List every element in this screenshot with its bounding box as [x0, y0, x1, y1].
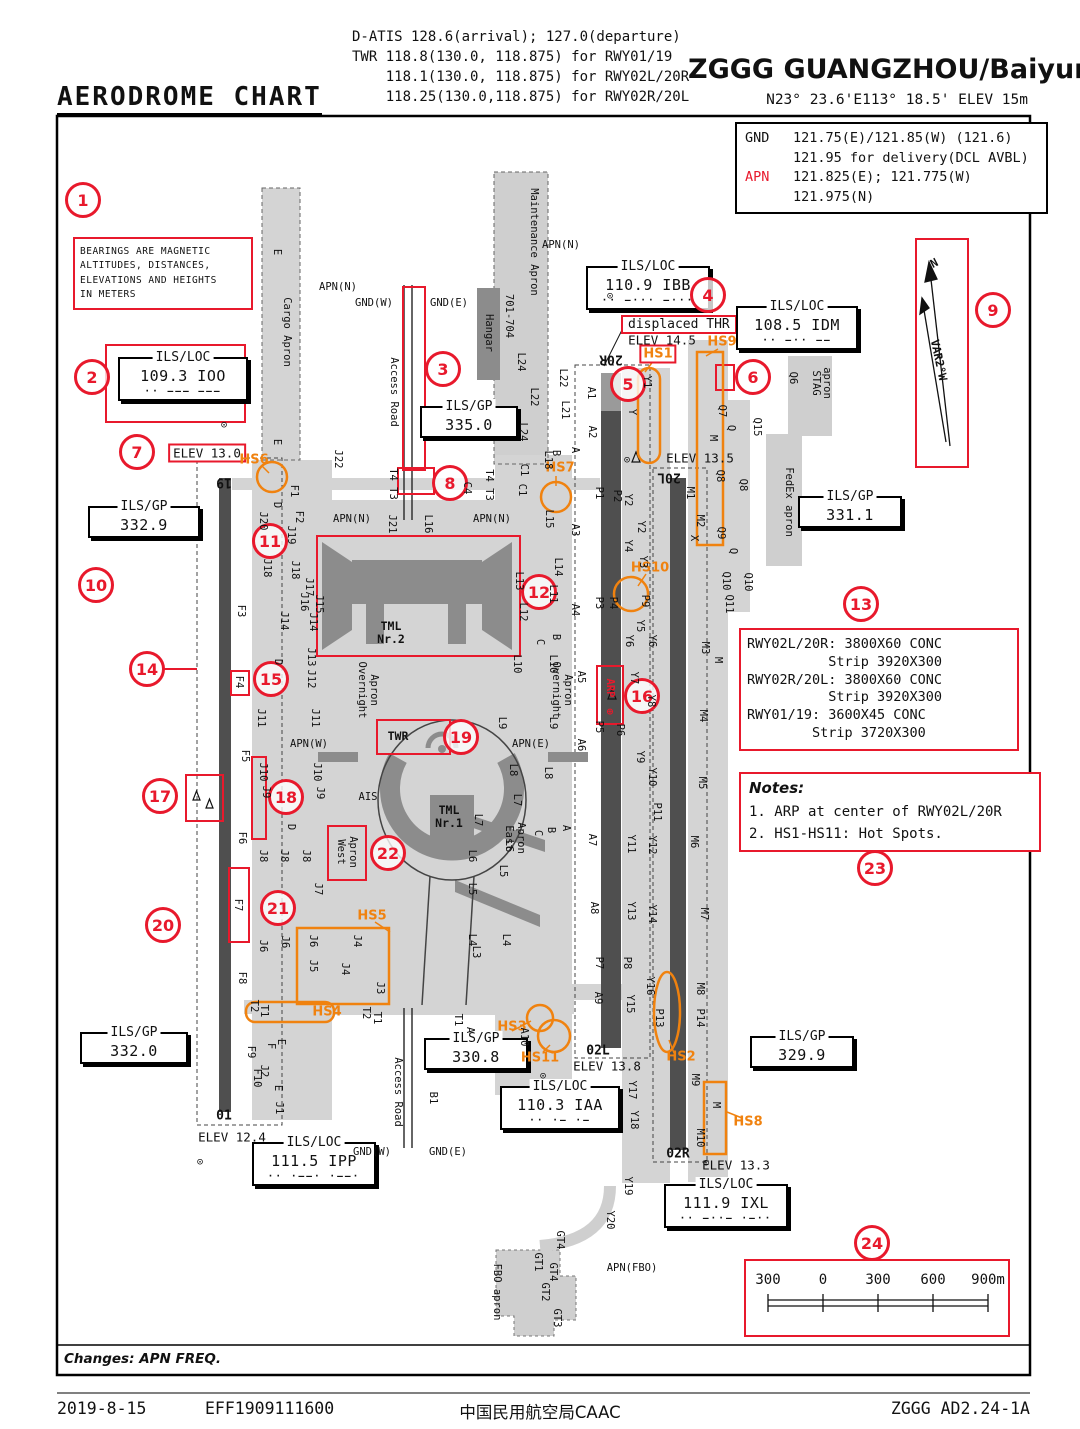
map-label: J10: [311, 763, 323, 782]
map-label: L3: [470, 946, 482, 959]
hotspot-label-hs9: HS9: [707, 335, 736, 350]
map-label: J3: [374, 982, 386, 995]
map-label: B: [550, 634, 562, 640]
navaid-type-label: ILS/LOC: [696, 1177, 757, 1192]
navaid-box-332-9: ILS/GP332.9: [88, 506, 200, 538]
map-label: B1: [427, 1092, 439, 1105]
map-label: T1: [258, 1005, 270, 1018]
callout-9: 9: [975, 292, 1011, 328]
navaid-box-110-3-IAA: ILS/LOC110.3 IAA·· ·– ·–: [500, 1086, 620, 1130]
map-label: AIS: [359, 791, 378, 803]
map-label: M9: [689, 1074, 701, 1087]
map-label: L5: [497, 865, 509, 878]
freq-service-label: APN: [745, 168, 793, 188]
map-label: ⊙: [607, 290, 613, 302]
freq-line: 118.25(130.0,118.875) for RWY02R/20L: [352, 88, 689, 108]
map-label: APN(N): [473, 513, 511, 525]
map-label: P14: [694, 1009, 706, 1028]
map-label: GND(E): [430, 297, 468, 309]
map-label: Q: [725, 425, 737, 431]
map-label: Y11: [625, 835, 637, 854]
map-label: Q10: [742, 573, 754, 592]
map-label: L7: [472, 814, 484, 827]
navaid-box-330-8: ILS/GP330.8: [424, 1038, 528, 1070]
map-label: Y6: [646, 635, 658, 648]
map-label: J13: [305, 648, 317, 667]
navaid-type-label: ILS/LOC: [153, 350, 214, 365]
navaid-type-label: ILS/GP: [824, 489, 877, 504]
navaid-box-108-5-IDM: ILS/LOC108.5 IDM·· –·· ––: [736, 306, 858, 350]
map-label: P9: [639, 595, 651, 608]
map-label: Hangar: [483, 314, 495, 352]
callout-1: 1: [65, 182, 101, 218]
navaid-frequency: 331.1: [804, 506, 896, 524]
map-label: Y4: [622, 540, 634, 553]
map-label: A10: [518, 1028, 530, 1047]
map-label: J6: [307, 935, 319, 948]
map-label: C: [534, 639, 546, 645]
map-label: J14: [278, 612, 290, 631]
map-label: Nr.1: [435, 816, 463, 830]
notes-items: 1. ARP at center of RWY02L/20R2. HS1-HS1…: [749, 802, 1031, 845]
freq-value: 121.825(E); 121.775(W): [793, 168, 972, 188]
map-label: Apron: [347, 836, 359, 868]
map-label: J6: [279, 936, 291, 949]
navaid-morse-code: ·· –··– ·–··: [670, 1213, 782, 1224]
map-label: A7: [586, 834, 598, 847]
map-label: A9: [592, 992, 604, 1005]
map-label: APN(W): [290, 738, 328, 750]
map-label: A6: [575, 739, 587, 752]
bearings-note-box: BEARINGS ARE MAGNETICALTITUDES, DISTANCE…: [73, 237, 253, 310]
map-label: L6: [466, 850, 478, 863]
footer-authority: 中国民用航空局CAAC: [459, 1399, 620, 1423]
map-label: A: [569, 447, 581, 453]
comm-frequencies: D-ATIS 128.6(arrival); 127.0(departure)T…: [352, 28, 689, 108]
map-label: A5: [575, 671, 587, 684]
map-label: J18: [289, 561, 301, 580]
map-label: A2: [586, 426, 598, 439]
scale-label: 900m: [971, 1272, 1005, 1288]
footer-effective-code: EFF1909111600: [205, 1399, 334, 1418]
callout-18: 18: [268, 779, 304, 815]
map-label: J19: [285, 526, 297, 545]
runway-end-label-01: 01: [216, 1109, 232, 1124]
map-label: Q11: [723, 595, 735, 614]
map-label: L8: [507, 764, 519, 777]
navaid-type-label: ILS/LOC: [284, 1135, 345, 1150]
navaid-morse-code: ·· ––– –––: [124, 386, 242, 397]
map-label: Y1: [641, 376, 653, 389]
map-label: F3: [235, 605, 247, 618]
map-label: ARP: [604, 679, 616, 698]
navaid-type-label: ILS/GP: [450, 1031, 503, 1046]
map-label: Y2: [622, 494, 634, 507]
runway-info-line: Strip 3920X300: [747, 654, 1011, 672]
navaid-box-335-0: ILS/GP335.0: [420, 406, 518, 438]
scale-bar-box: [744, 1259, 1010, 1337]
overlay-layer: AERODROME CHART D-ATIS 128.6(arrival); 1…: [0, 0, 1080, 1429]
map-label: FBO apron: [491, 1264, 503, 1321]
navaid-type-label: ILS/LOC: [530, 1079, 591, 1094]
map-label: ⊙: [197, 1156, 203, 1168]
map-label: M5: [696, 777, 708, 790]
map-label: APN(N): [333, 513, 371, 525]
map-label: Y14: [646, 905, 658, 924]
map-label: P7: [593, 957, 605, 970]
map-label: T4 T3: [483, 469, 495, 501]
map-label: J11: [255, 709, 267, 728]
runway-info-line: Strip 3920X300: [747, 689, 1011, 707]
note-item: 1. ARP at center of RWY02L/20R: [749, 802, 1031, 824]
map-label: X: [688, 535, 700, 541]
map-label: J5: [307, 960, 319, 973]
map-label: GT2: [539, 1283, 551, 1302]
map-label: P3: [593, 597, 605, 610]
runway-end-label-20L: 20L: [657, 470, 680, 485]
map-label: Y20: [604, 1211, 616, 1230]
note-item: 2. HS1-HS11: Hot Spots.: [749, 824, 1031, 846]
runway-end-label-20R: 20R: [599, 352, 622, 367]
navaid-type-label: ILS/GP: [108, 1025, 161, 1040]
hotspot-label-hs2: HS2: [666, 1050, 695, 1065]
map-label: FedEx apron: [783, 467, 795, 537]
navaid-morse-code: ·· –·· ––: [742, 335, 852, 346]
map-label: J15: [313, 595, 325, 614]
map-label: J11: [309, 709, 321, 728]
map-label: West: [335, 839, 347, 864]
map-label: D: [272, 659, 284, 665]
map-label: L4: [466, 934, 478, 947]
map-label: M2: [694, 515, 706, 528]
map-label: Y19: [622, 1177, 634, 1196]
navaid-morse-code: ·· ·––· ·––·: [258, 1171, 370, 1182]
map-label: Access Road: [392, 1057, 404, 1127]
map-label: GT1: [532, 1253, 544, 1272]
map-label: Y9: [634, 751, 646, 764]
map-label: L4: [500, 934, 512, 947]
map-label: Apron: [515, 822, 527, 854]
bearings-line: BEARINGS ARE MAGNETIC: [80, 245, 246, 259]
navaid-type-label: ILS/GP: [118, 499, 171, 514]
map-label: L11: [547, 585, 559, 604]
map-label: F7: [232, 899, 244, 912]
scale-label: 300: [865, 1272, 890, 1288]
hotspot-label-hs1: HS1: [639, 345, 676, 364]
map-label: J12: [305, 670, 317, 689]
map-label: Y7: [628, 672, 640, 685]
freq-line: D-ATIS 128.6(arrival); 127.0(departure): [352, 28, 689, 48]
aerodrome-chart-page: AERODROME CHART D-ATIS 128.6(arrival); 1…: [0, 0, 1080, 1429]
callout-20: 20: [145, 907, 181, 943]
map-label: L14: [552, 558, 564, 577]
runway-info-line: RWY02L/20R: 3800X60 CONC: [747, 636, 1011, 654]
map-label: J7: [312, 883, 324, 896]
map-label: GND(E): [429, 1146, 467, 1158]
map-label: Y18: [628, 1111, 640, 1130]
freq-value: 121.95 for delivery(DCL AVBL): [793, 149, 1029, 169]
hotspot-label-hs11: HS11: [521, 1051, 559, 1066]
map-label: Q: [727, 548, 739, 554]
map-label: GND(W): [353, 1146, 391, 1158]
callout-10: 10: [78, 567, 114, 603]
map-label: M: [707, 435, 719, 441]
hotspot-label-hs8: HS8: [733, 1115, 762, 1130]
map-label: L22: [528, 388, 540, 407]
map-label: F1: [288, 485, 300, 498]
footer-date: 2019-8-15: [57, 1399, 146, 1418]
map-label: J1: [273, 1102, 285, 1115]
map-label: GT4: [554, 1231, 566, 1250]
map-label: A: [560, 825, 572, 831]
map-label: A: [464, 1027, 476, 1033]
navaid-box-109-3-IOO: ILS/LOC109.3 IOO·· ––– –––: [118, 357, 248, 401]
callout-24: 24: [854, 1225, 890, 1261]
map-label: D: [285, 824, 297, 830]
map-label: E: [271, 249, 283, 255]
map-label: L9: [496, 717, 508, 730]
map-label: F5: [239, 750, 251, 763]
map-label: Y3: [637, 556, 649, 569]
navaid-type-label: ILS/GP: [776, 1029, 829, 1044]
map-label: Q6: [787, 372, 799, 385]
map-label: ⊙: [221, 419, 227, 431]
callout-23: 23: [857, 850, 893, 886]
map-label: L22: [557, 369, 569, 388]
map-label: P6: [614, 724, 626, 737]
map-label: Y2: [635, 521, 647, 534]
map-label: Y5: [634, 620, 646, 633]
map-label: Access Road: [388, 357, 400, 427]
map-label: J10: [257, 763, 269, 782]
map-label: Y17: [626, 1081, 638, 1100]
changes-note: Changes: APN FREQ.: [64, 1351, 221, 1367]
callout-13: 13: [843, 586, 879, 622]
map-label: L12: [517, 603, 529, 622]
map-label: T1: [371, 1012, 383, 1025]
map-label: P5: [593, 721, 605, 734]
map-label: Y: [626, 409, 638, 415]
elevation-label: ELEV 12.4: [198, 1130, 266, 1145]
map-label: J21: [386, 515, 398, 534]
freq-line: 118.1(130.0, 118.875) for RWY02L/20R: [352, 68, 689, 88]
map-label: E: [271, 439, 283, 445]
map-label: TML: [439, 803, 460, 817]
navaid-type-label: ILS/LOC: [618, 259, 679, 274]
map-label: J14: [307, 613, 319, 632]
map-label: L8: [542, 767, 554, 780]
navaid-frequency: 110.3 IAA: [506, 1096, 614, 1114]
map-label: M4: [697, 710, 709, 723]
callout-15: 15: [253, 661, 289, 697]
map-label: APN(N): [319, 281, 357, 293]
map-label: Apron: [368, 674, 380, 706]
map-label: APN(E): [512, 738, 550, 750]
map-label: T1: [452, 1014, 464, 1027]
map-label: Q8: [714, 470, 726, 483]
hotspot-label-hs5: HS5: [357, 909, 386, 924]
bearings-line: ELEVATIONS AND HEIGHTS: [80, 274, 246, 288]
map-label: ⊙: [540, 1070, 546, 1082]
map-label: GND(W): [355, 297, 393, 309]
notes-box: Notes: 1. ARP at center of RWY02L/20R2. …: [739, 772, 1041, 852]
map-label: 701-704: [503, 294, 515, 338]
map-label: Nr.2: [377, 632, 405, 646]
callout-2: 2: [74, 359, 110, 395]
callout-14: 14: [129, 651, 165, 687]
map-label: APN(N): [542, 239, 580, 251]
map-label: J20: [257, 512, 269, 531]
map-label: F: [265, 1043, 277, 1049]
navaid-frequency: 111.9 IXL: [670, 1194, 782, 1212]
map-label: F9: [245, 1046, 257, 1059]
airport-name: ZGGG GUANGZHOU/Baiyun: [688, 54, 1033, 85]
map-label: L9: [547, 717, 559, 730]
map-label: J8: [300, 850, 312, 863]
map-label: TML: [381, 619, 402, 633]
freq-service-label: [745, 149, 793, 169]
map-label: M7: [698, 908, 710, 921]
map-label: J18: [261, 559, 273, 578]
navaid-box-331-1: ILS/GP331.1: [798, 496, 902, 528]
displaced-threshold-label: displaced THR: [621, 315, 737, 334]
map-label: A3: [569, 524, 581, 537]
map-label: C1: [518, 464, 530, 477]
map-label: A8: [588, 902, 600, 915]
runway-info-line: Strip 3720X300: [747, 725, 1011, 743]
map-label: P11: [651, 803, 663, 822]
map-label: GT3: [551, 1309, 563, 1328]
map-label: L21: [559, 401, 571, 420]
map-label: TWR: [388, 729, 409, 743]
map-label: C4: [461, 482, 473, 495]
freq-service-label: GND: [745, 129, 793, 149]
map-label: J9: [260, 786, 272, 799]
navaid-box-332-0: ILS/GP332.0: [80, 1032, 188, 1064]
map-label: C: [532, 830, 544, 836]
freq-row: 121.975(N): [745, 188, 1038, 208]
freq-value: 121.75(E)/121.85(W) (121.6): [793, 129, 1012, 149]
bearings-line: ALTITUDES, DISTANCES,: [80, 259, 246, 273]
map-label: F6: [236, 832, 248, 845]
elevation-label: ELEV 13.0: [168, 444, 246, 463]
elevation-label: ELEV 13.3: [702, 1158, 770, 1173]
freq-row: GND121.75(E)/121.85(W) (121.6): [745, 129, 1038, 149]
map-label: Q9: [715, 527, 727, 540]
callout-4: 4: [690, 277, 726, 313]
navaid-type-label: ILS/GP: [443, 399, 496, 414]
navaid-frequency: 332.0: [86, 1042, 182, 1060]
map-label: Y16: [644, 977, 656, 996]
bearings-line: IN METERS: [80, 288, 246, 302]
callout-6: 6: [735, 359, 771, 395]
footer-chart-id: ZGGG AD2.24-1A: [891, 1399, 1030, 1418]
runway-end-label-02L: 02L: [586, 1044, 609, 1059]
map-label: Y12: [646, 836, 658, 855]
runway-info-line: RWY02R/20L: 3800X60 CONC: [747, 672, 1011, 690]
runway-end-label-02R: 02R: [666, 1147, 689, 1162]
map-label: M: [712, 657, 724, 663]
map-label: C1: [516, 484, 528, 497]
map-label: L24: [517, 423, 529, 442]
map-label: J6: [257, 940, 269, 953]
map-label: J9: [314, 787, 326, 800]
map-label: F8: [236, 972, 248, 985]
map-label: Q10: [720, 572, 732, 591]
navaid-frequency: 329.9: [756, 1046, 848, 1064]
map-label: M10: [694, 1129, 706, 1148]
map-label: M: [710, 1102, 722, 1108]
map-label: Y6: [623, 635, 635, 648]
scale-label: 600: [920, 1272, 945, 1288]
map-label: J4: [351, 935, 363, 948]
navaid-morse-code: ·· ·– ·–: [506, 1115, 614, 1126]
map-label: E: [272, 1085, 284, 1091]
map-label: Y15: [624, 995, 636, 1014]
map-label: GT4: [547, 1263, 559, 1282]
map-label: L16: [422, 515, 434, 534]
map-label: T4 T3: [387, 468, 399, 500]
map-label: A1: [585, 387, 597, 400]
callout-22: 22: [370, 835, 406, 871]
map-label: Q8: [737, 479, 749, 492]
map-label: M1: [684, 487, 696, 500]
map-label: Cargo Apron: [281, 297, 293, 367]
map-label: L13: [513, 572, 525, 591]
map-label: L7: [511, 794, 523, 807]
map-label: Q15: [751, 418, 763, 437]
runway-end-label-19: 19: [216, 475, 232, 490]
map-label: M8: [694, 983, 706, 996]
map-label: J16: [298, 593, 310, 612]
callout-3: 3: [425, 351, 461, 387]
map-label: M3: [699, 642, 711, 655]
elevation-label: ELEV 13.5: [666, 451, 734, 466]
callout-7: 7: [119, 434, 155, 470]
callout-19: 19: [443, 719, 479, 755]
scale-label: 300: [755, 1272, 780, 1288]
freq-value: 121.975(N): [793, 188, 874, 208]
map-label: J2: [258, 1065, 270, 1078]
map-label: J22: [332, 450, 344, 469]
map-label: ⊙: [624, 454, 630, 466]
map-label: F4: [233, 676, 245, 689]
map-label: APN(FBO): [607, 1262, 658, 1274]
map-label: apron: [821, 367, 833, 399]
map-label: B: [550, 450, 562, 456]
map-label: Y10: [646, 768, 658, 787]
notes-title: Notes:: [749, 779, 1031, 797]
map-label: Apron: [562, 674, 574, 706]
hotspot-label-hs6: HS6: [239, 453, 268, 468]
map-label: L10: [511, 655, 523, 674]
map-label: P4: [607, 597, 619, 610]
elevation-label: ELEV 13.8: [573, 1059, 641, 1074]
map-label: L15: [543, 510, 555, 529]
map-label: Q7: [716, 405, 728, 418]
freq-row: APN121.825(E); 121.775(W): [745, 168, 1038, 188]
map-label: Y13: [625, 902, 637, 921]
freq-service-label: [745, 188, 793, 208]
navaid-frequency: 332.9: [94, 516, 194, 534]
map-label: J8: [257, 850, 269, 863]
navaid-frequency: 109.3 IOO: [124, 367, 242, 385]
map-label: P8: [621, 957, 633, 970]
hotspot-label-hs4: HS4: [312, 1005, 341, 1020]
navaid-frequency: 330.8: [430, 1048, 522, 1066]
map-label: L6: [503, 840, 515, 853]
map-label: L24: [515, 353, 527, 372]
